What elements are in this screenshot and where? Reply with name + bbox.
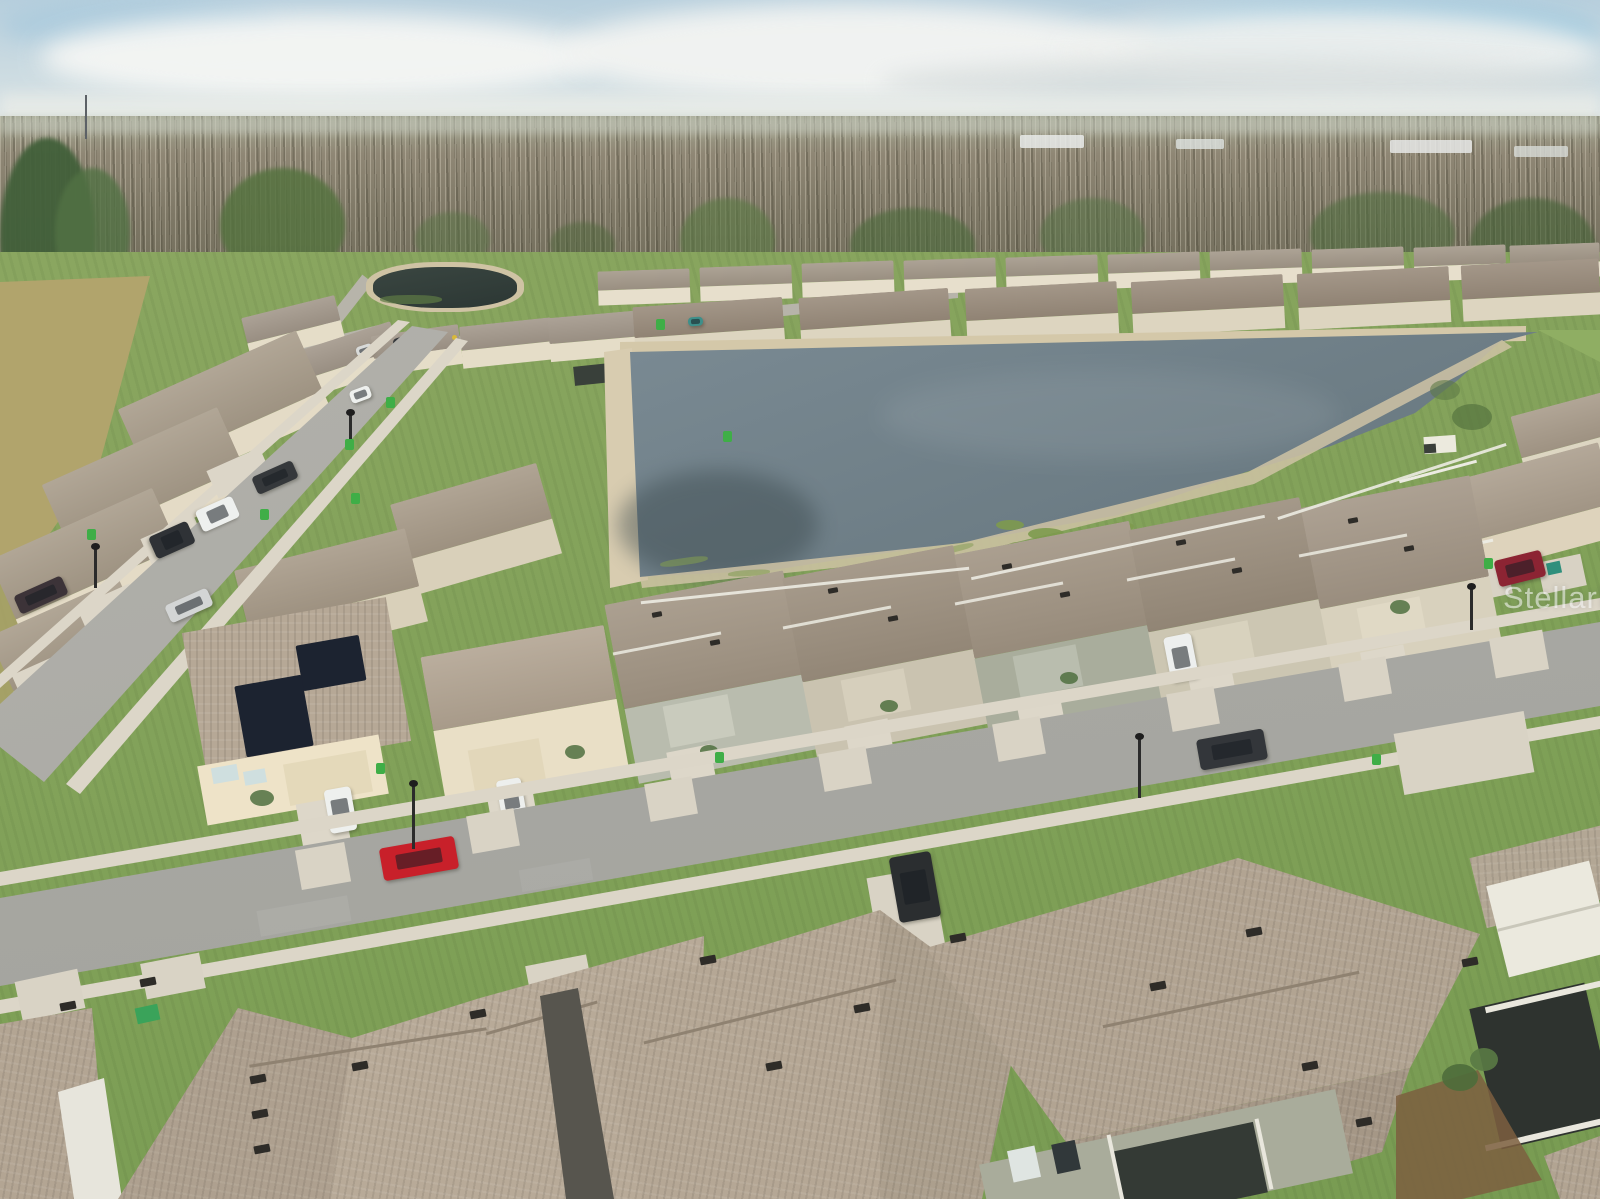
distant-buildings xyxy=(1390,140,1472,153)
car-windshield xyxy=(206,504,229,524)
car-windshield xyxy=(395,847,443,871)
car-windshield xyxy=(691,319,700,324)
bush xyxy=(1442,1064,1478,1091)
bush xyxy=(565,745,585,759)
trash-bin xyxy=(260,509,269,520)
watermark: StellarMLS xyxy=(1503,580,1600,616)
street-lamp xyxy=(349,414,352,440)
small-pond-algae xyxy=(380,295,442,304)
lamp-head xyxy=(91,543,100,550)
car-windshield xyxy=(1211,739,1254,761)
distant-buildings xyxy=(1176,139,1224,149)
car-windshield xyxy=(160,529,184,550)
distant-buildings xyxy=(1020,135,1084,148)
bush xyxy=(1452,404,1492,430)
trash-bin xyxy=(376,763,385,774)
bush xyxy=(1390,600,1410,614)
pond-row-house xyxy=(1131,274,1286,336)
street-lamp xyxy=(412,785,415,849)
trash-bin xyxy=(351,493,360,504)
cloud xyxy=(40,14,600,100)
solar-panel-array xyxy=(234,675,313,758)
bush xyxy=(1060,672,1078,684)
street-lamp xyxy=(1470,588,1473,630)
bush xyxy=(1470,1048,1498,1071)
aerial-photo-residential-community: StellarMLS xyxy=(0,0,1600,1199)
lamp-head xyxy=(1135,733,1144,740)
radio-tower xyxy=(85,95,87,139)
car-windshield xyxy=(353,389,367,399)
street-lamp xyxy=(94,548,97,588)
trash-bin xyxy=(87,529,96,540)
lamp-head xyxy=(1467,583,1476,590)
bush xyxy=(250,790,274,806)
background-house xyxy=(597,268,690,305)
pond-row-house xyxy=(1461,258,1600,321)
car-windshield xyxy=(1171,645,1192,669)
lamp-head xyxy=(346,409,355,416)
horizon-haze xyxy=(0,116,1600,134)
trash-bin xyxy=(345,439,354,450)
parked-car xyxy=(688,316,704,326)
pond-light-reflection xyxy=(880,370,1340,460)
lamp-head xyxy=(409,780,418,787)
car-windshield xyxy=(900,869,930,905)
bush xyxy=(1430,380,1460,400)
trash-bin xyxy=(386,397,395,408)
trash-bin xyxy=(1484,558,1493,569)
car-windshield xyxy=(1504,559,1535,579)
driveway-apron xyxy=(295,842,351,890)
bush xyxy=(880,700,898,712)
lily-pads xyxy=(996,520,1024,530)
trash-bin xyxy=(1372,754,1381,765)
trash-bin xyxy=(656,319,665,330)
trash-bin xyxy=(723,431,732,442)
street-lamp xyxy=(1138,738,1141,798)
trash-bin xyxy=(715,752,724,763)
house-wall xyxy=(598,287,690,305)
pond-row-house xyxy=(1297,266,1452,330)
shed-door xyxy=(1424,444,1437,454)
distant-buildings xyxy=(1514,146,1568,157)
